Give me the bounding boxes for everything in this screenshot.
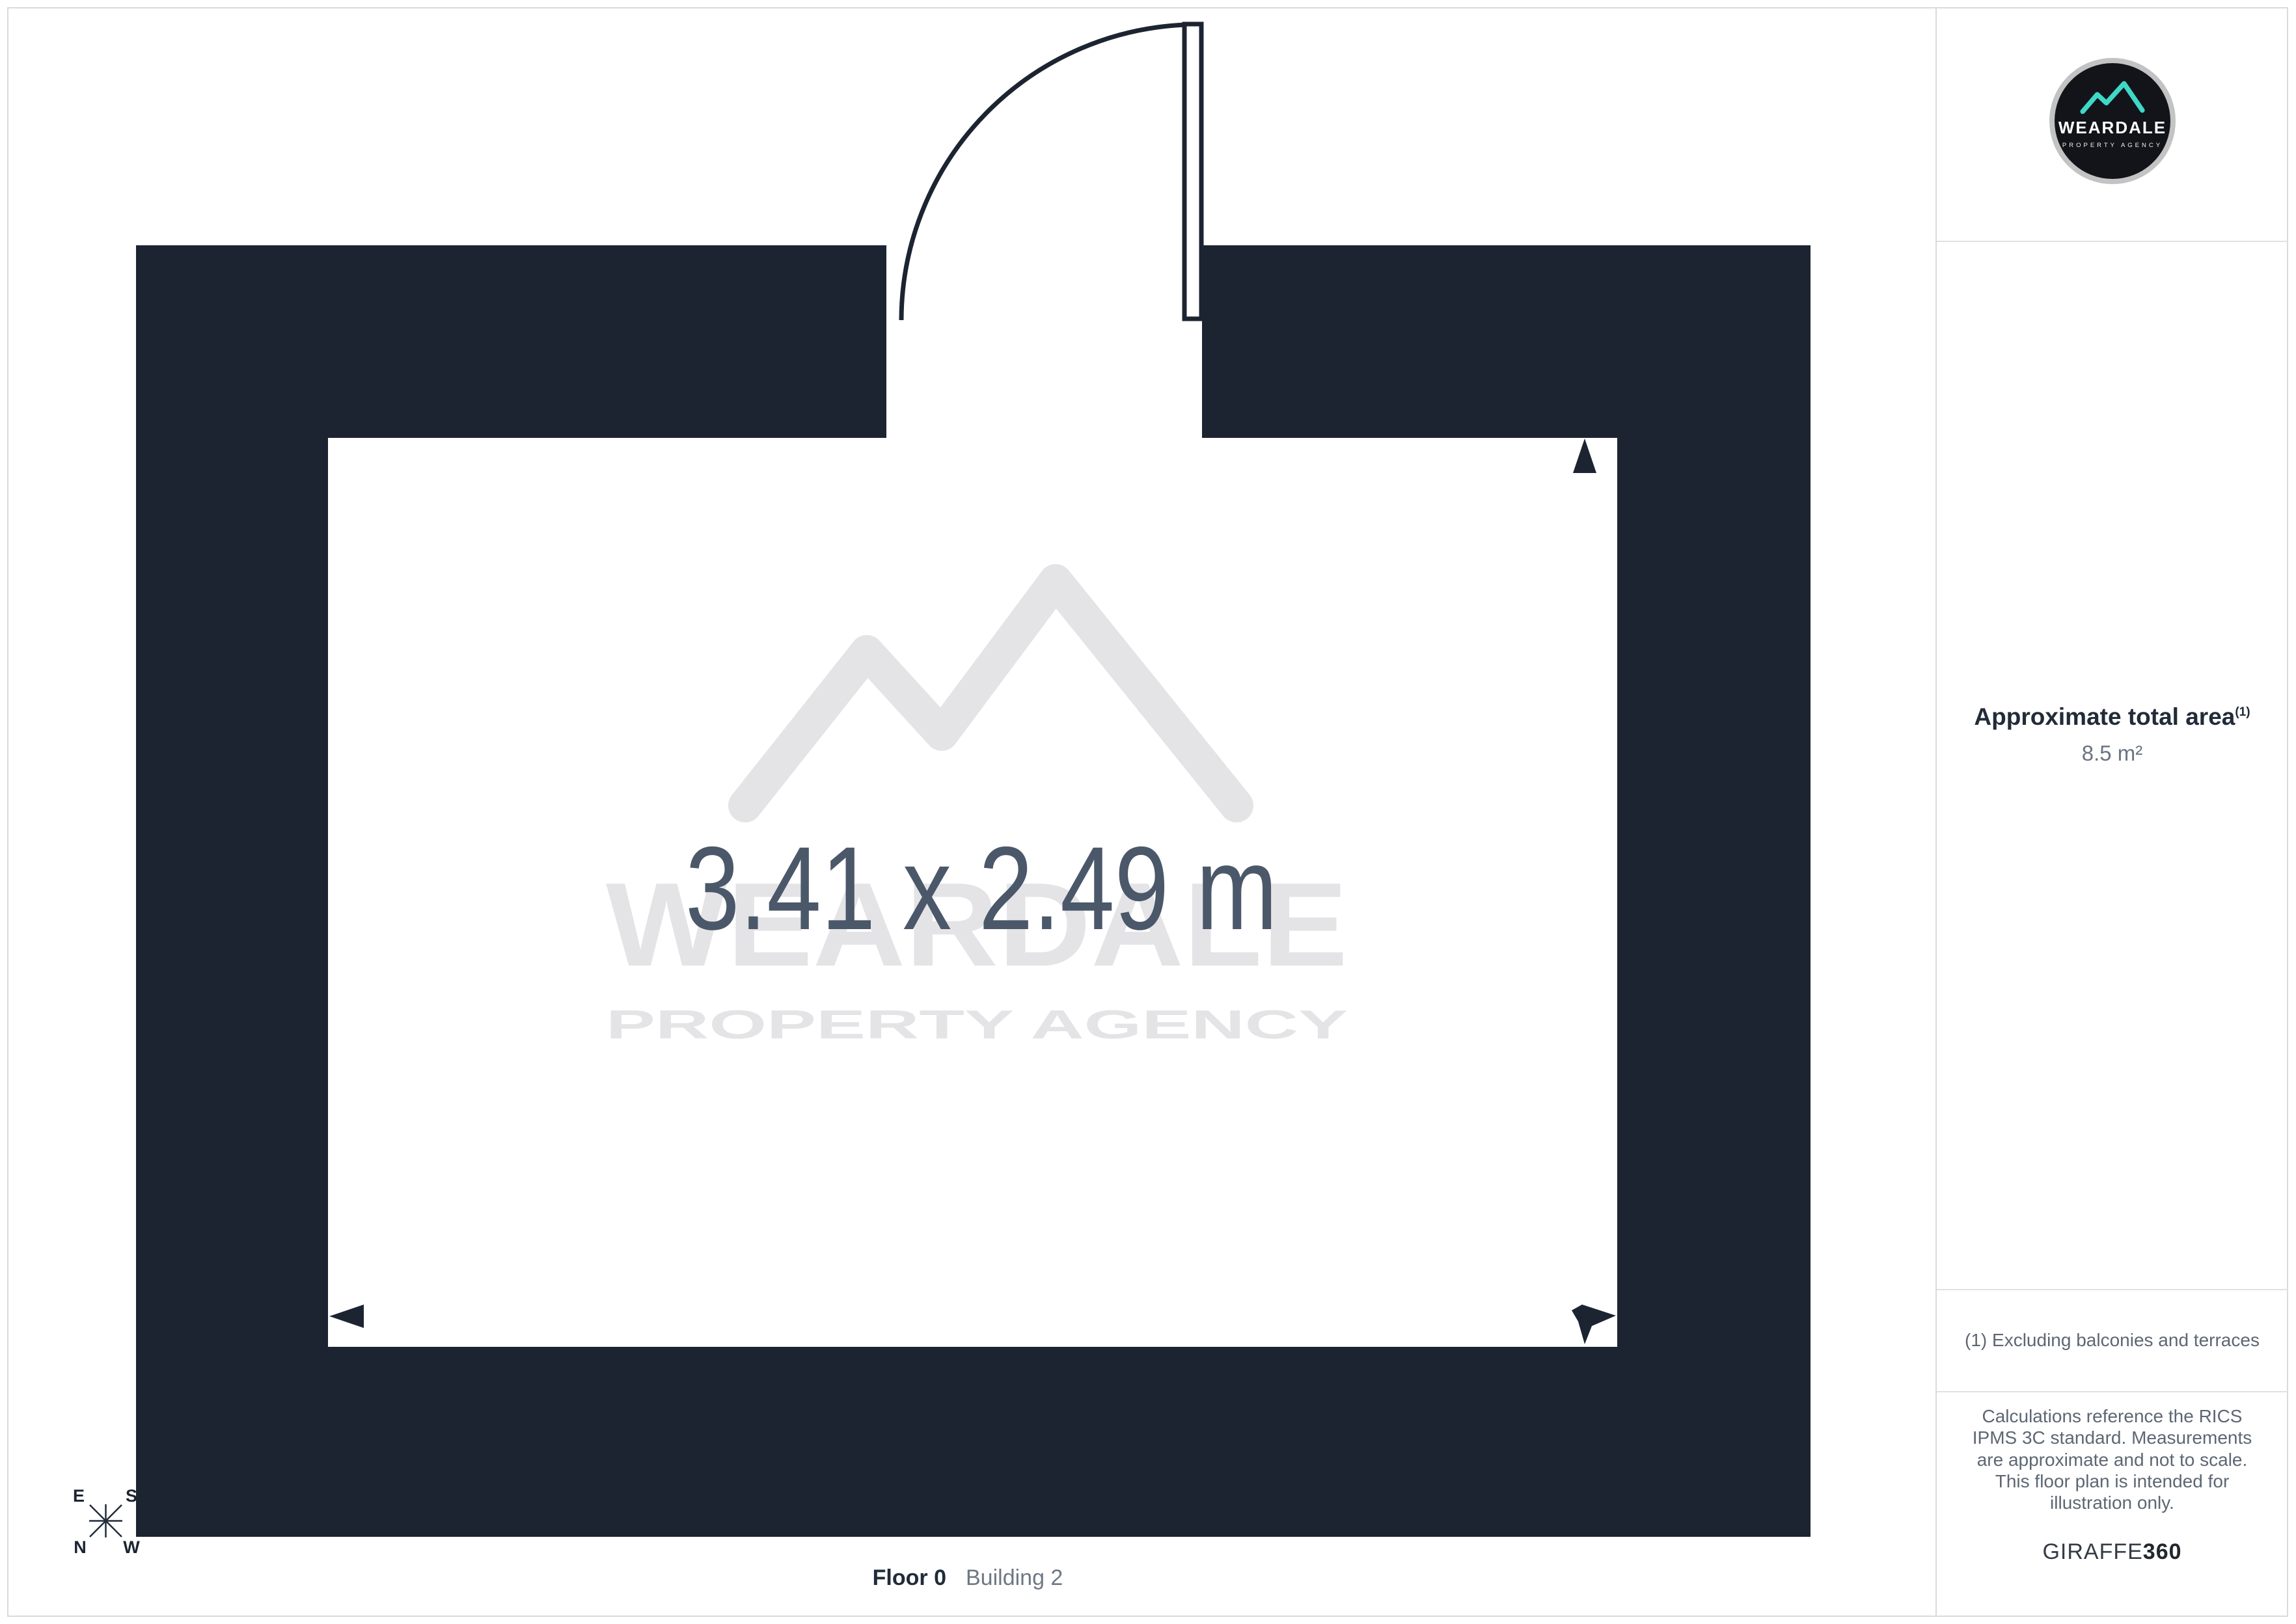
camera-marker-top-right: [1573, 439, 1596, 473]
total-area-section: Approximate total area(1) 8.5 m²: [1937, 704, 2288, 766]
entrance-door: [901, 24, 1201, 320]
total-area-heading-text: Approximate total area: [1974, 703, 2235, 730]
generator-suffix: 360: [2143, 1539, 2182, 1564]
compass-letter-e: E: [73, 1486, 85, 1506]
logo-tagline-text: PROPERTY AGENCY: [2062, 142, 2163, 149]
building-label: Building 2: [966, 1565, 1063, 1590]
total-area-value: 8.5 m²: [1937, 741, 2288, 766]
total-area-footnote-marker: (1): [2235, 705, 2250, 719]
compass-letter-w: W: [123, 1537, 140, 1557]
sidebar-divider-under-logo: [1937, 241, 2288, 242]
footnote-text: (1) Excluding balconies and terraces: [1965, 1330, 2260, 1351]
watermark: WEARDALE PROPERTY AGENCY: [606, 581, 1348, 1048]
watermark-mountain-icon: [745, 581, 1237, 805]
door-leaf: [1184, 24, 1201, 319]
compass-star-icon: [89, 1504, 122, 1537]
door-swing-arc: [901, 25, 1187, 320]
watermark-tagline: PROPERTY AGENCY: [606, 1003, 1348, 1048]
total-area-heading: Approximate total area(1): [1937, 704, 2288, 731]
camera-marker-bottom-right: [1572, 1305, 1616, 1344]
room-dimensions-label: 3.41 x 2.49 m: [685, 822, 1278, 954]
sidebar-divider-above-disclaimer: [1937, 1391, 2288, 1392]
logo-mountain-icon: [2079, 77, 2146, 115]
disclaimer-section: Calculations reference the RICS IPMS 3C …: [1937, 1405, 2288, 1514]
agency-logo: WEARDALE PROPERTY AGENCY: [2049, 58, 2176, 184]
disclaimer-text: Calculations reference the RICS IPMS 3C …: [1959, 1405, 2266, 1514]
camera-marker-bottom-left: [329, 1305, 364, 1328]
footnote-section: (1) Excluding balconies and terraces: [1937, 1290, 2288, 1390]
generator-brand: GIRAFFE: [2042, 1539, 2142, 1564]
floor-label: Floor 0: [873, 1565, 946, 1590]
compass-letter-s: S: [126, 1486, 137, 1506]
floor-plan-page: WEARDALE PROPERTY AGENCY 3.41 x 2.49 m E…: [0, 0, 2296, 1624]
generator-credit: GIRAFFE360: [1937, 1539, 2288, 1565]
plan-footer: Floor 0Building 2: [0, 1565, 1935, 1591]
compass-letter-n: N: [74, 1537, 87, 1557]
compass: E S N W: [73, 1486, 140, 1557]
logo-brand-text: WEARDALE: [2058, 118, 2166, 138]
